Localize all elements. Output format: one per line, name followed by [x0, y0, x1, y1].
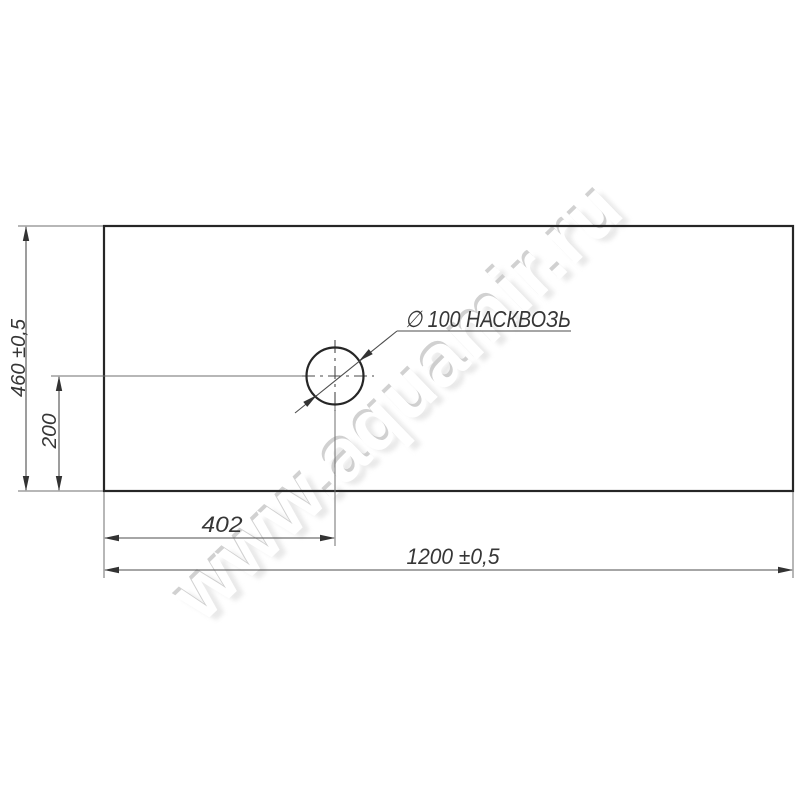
dimension-offset-y-label: 200	[39, 414, 61, 450]
watermark: www.aquamir.ru www.aquamir.ru www.aquami…	[152, 160, 646, 641]
hole-note-label: ∅ 100 НАСКВОЗЬ	[405, 306, 571, 332]
arrowhead-offset-y-top	[56, 376, 62, 391]
arrowhead-offset-x-right	[320, 535, 335, 541]
technical-drawing-page: www.aquamir.ru www.aquamir.ru www.aquami…	[0, 0, 800, 800]
dimension-hole-offset-y: 200	[39, 376, 62, 491]
dimension-height: 460 ±0,5	[8, 226, 30, 491]
arrowhead-height-bottom	[23, 476, 29, 491]
arrowhead-offset-y-bottom	[56, 476, 62, 491]
arrowhead-offset-x-left	[104, 535, 119, 541]
arrowhead-height-top	[23, 226, 29, 241]
arrowhead-width-left	[104, 567, 119, 573]
dimension-height-label: 460 ±0,5	[8, 318, 30, 397]
drawing-canvas: www.aquamir.ru www.aquamir.ru www.aquami…	[0, 0, 800, 800]
dimension-width-label: 1200 ±0,5	[407, 544, 501, 569]
watermark-highlight-text: www.aquamir.ru	[154, 165, 638, 636]
dimension-offset-x-label: 402	[202, 512, 243, 537]
arrowhead-leader-lower	[303, 392, 319, 406]
arrowhead-width-right	[778, 567, 793, 573]
